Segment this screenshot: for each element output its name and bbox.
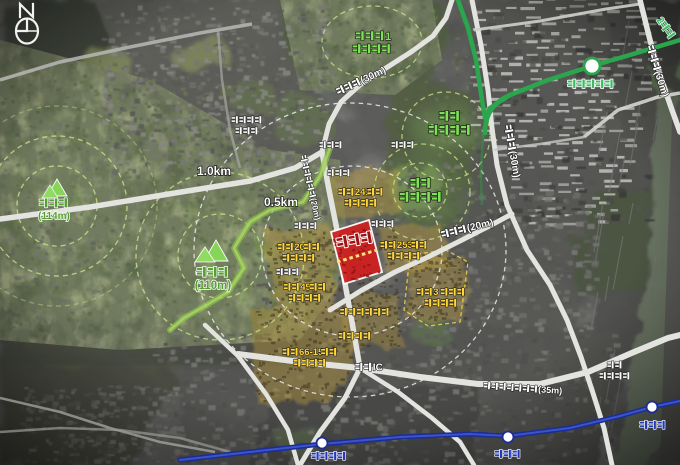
svg-text:66-15: 66-15 [299, 347, 324, 358]
svg-text:0.5km: 0.5km [264, 195, 298, 209]
svg-text:49: 49 [300, 282, 311, 293]
svg-text:20: 20 [294, 242, 305, 253]
svg-text:(110m): (110m) [195, 280, 232, 292]
svg-text:(35m): (35m) [538, 384, 563, 396]
svg-text:1: 1 [385, 31, 391, 43]
svg-text:(114m): (114m) [38, 211, 70, 222]
svg-text:1.0km: 1.0km [197, 164, 231, 178]
svg-text:IC: IC [373, 362, 384, 373]
svg-text:253: 253 [397, 240, 413, 251]
svg-text:3: 3 [433, 287, 438, 298]
